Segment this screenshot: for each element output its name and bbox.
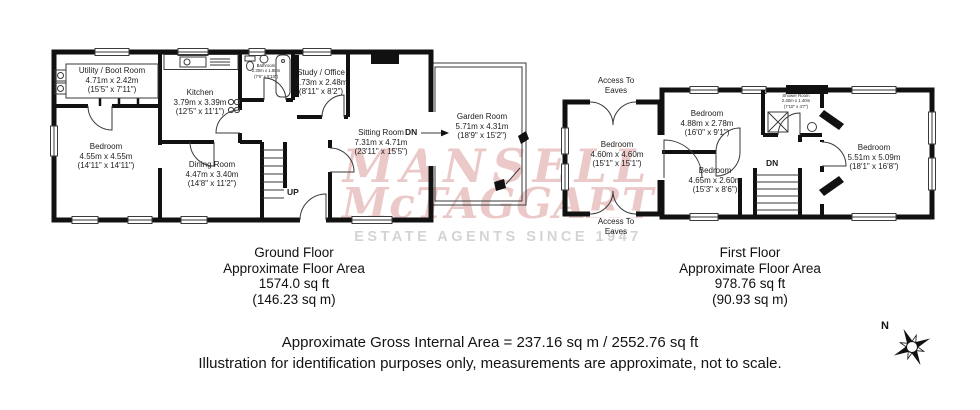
north-label: N bbox=[881, 320, 889, 332]
room-label-bedroom-mid-top: Bedroom 4.88m x 2.78m (16'0" x 9'1") bbox=[647, 109, 767, 138]
footer-gross-area: Approximate Gross Internal Area = 237.16… bbox=[0, 334, 980, 351]
room-label-kitchen: Kitchen 3.79m x 3.39m (12'5" x 11'1") bbox=[140, 88, 260, 117]
access-eaves-bottom-label: Access To Eaves bbox=[586, 217, 646, 236]
room-label-bedroom-right: Bedroom 5.51m x 5.09m (18'1" x 16'8") bbox=[814, 143, 934, 172]
access-eaves-top-label: Access To Eaves bbox=[586, 76, 646, 95]
room-label-dining: Dining Room 4.47m x 3.40m (14'8" x 11'2"… bbox=[152, 160, 272, 189]
ground-floor-title: Ground Floor bbox=[184, 245, 404, 261]
first-floor-title: First Floor bbox=[640, 245, 860, 261]
caption-first-floor: First Floor Approximate Floor Area 978.7… bbox=[640, 245, 860, 307]
room-label-garden: Garden Room 5.71m x 4.31m (18'9" x 15'2"… bbox=[422, 112, 542, 141]
chimney-block bbox=[371, 51, 399, 64]
dn-label-first: DN bbox=[766, 158, 778, 168]
shower-fixtures bbox=[768, 112, 817, 132]
dn-label-ground: DN bbox=[405, 127, 417, 137]
up-label: UP bbox=[287, 187, 299, 197]
room-label-bedroom-mid-bottom: Bedroom 4.65m x 2.60m (15'3" x 8'6") bbox=[655, 166, 775, 195]
room-label-study: Study / Office 2.73m x 2.48m (8'11" x 8'… bbox=[261, 68, 381, 97]
room-label-shower: Shower Room 2.40m x 1.40m (7'10" x 4'7") bbox=[766, 93, 826, 109]
footer-disclaimer: Illustration for identification purposes… bbox=[0, 355, 980, 372]
room-label-bedroom-gf: Bedroom 4.55m x 4.55m (14'11" x 14'11") bbox=[46, 142, 166, 171]
caption-ground-floor: Ground Floor Approximate Floor Area 1574… bbox=[184, 245, 404, 307]
room-label-bedroom-left: Bedroom 4.60m x 4.60m (15'1" x 15'1") bbox=[557, 140, 677, 169]
